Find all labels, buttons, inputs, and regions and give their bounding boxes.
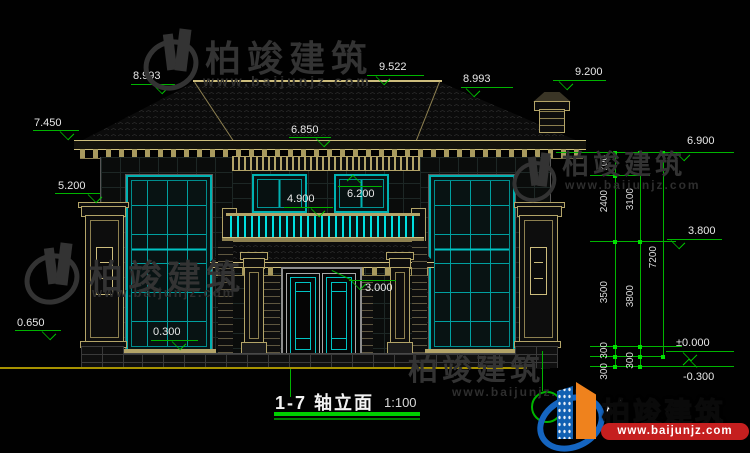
dim-7200: 7200 — [648, 246, 659, 268]
elevation-triangle — [60, 126, 75, 141]
elevation-label-door-top: 3.000 — [365, 282, 393, 294]
watermark-logo-icon — [24, 240, 84, 304]
dim-line — [33, 130, 79, 131]
chain-tick — [613, 365, 617, 369]
chain-tick — [638, 345, 642, 349]
dim-line — [338, 186, 382, 187]
logo-blue-tower-icon — [557, 386, 573, 439]
center-eave-slat-band — [232, 156, 420, 171]
left-pillar-base-stone — [81, 346, 124, 368]
chain-tick — [638, 355, 642, 359]
elevation-triangle — [671, 235, 686, 250]
watermark-url: www.baijunjz.com — [203, 73, 372, 89]
elevation-label-window2f-top: 6.200 — [347, 188, 375, 200]
elevation-label-pillar-top: 5.200 — [58, 180, 86, 192]
dim-line — [15, 330, 61, 331]
elevation-label-eave-right: 6.900 — [687, 135, 715, 147]
watermark-logo-icon — [512, 150, 560, 201]
elevation-label-balcony-rail: 4.900 — [287, 193, 315, 205]
watermark-url: www.baijunjz.com — [92, 285, 236, 300]
dim-line — [666, 351, 734, 352]
dim-300c: 300 — [599, 363, 610, 380]
chain-tick — [661, 355, 665, 359]
elevation-label-pillar-base: 0.650 — [17, 317, 45, 329]
logo-orange-tower-icon — [576, 382, 596, 439]
chain-tick — [638, 365, 642, 369]
elevation-label-floor2: 3.800 — [688, 225, 716, 237]
dim-line — [284, 207, 333, 208]
drawing-scale: 1:100 — [384, 395, 417, 410]
elevation-label-window-sill: 0.300 — [153, 326, 181, 338]
porch-column-left-shaft — [244, 267, 264, 344]
elevation-label-eave-center: 6.850 — [291, 124, 319, 136]
chain-tick — [613, 240, 617, 244]
right-pillar-lamp — [530, 247, 547, 295]
elevation-triangle — [559, 76, 574, 91]
watermark-brand: 柏竣建筑 — [408, 345, 544, 389]
dim-300b: 300 — [625, 352, 636, 369]
title-underline-thin — [274, 418, 420, 420]
door-leaf-left — [286, 273, 320, 359]
door-leaf-right — [322, 273, 356, 359]
dim-2400: 2400 — [599, 190, 610, 212]
drawing-title: 1-7 轴立面 — [275, 389, 374, 415]
balcony-balusters — [230, 216, 418, 237]
watermark-logo-icon — [143, 26, 203, 90]
logo-url-strip: www.baijunjz.com — [601, 423, 749, 440]
chain-tick — [638, 240, 642, 244]
chain-line-ground — [590, 366, 734, 367]
elevation-label-floor0: ±0.000 — [676, 337, 710, 349]
elevation-label-roof-left-tip: 7.450 — [34, 117, 62, 129]
elevation-label-ridge-center: 9.522 — [379, 61, 407, 73]
quoin-strip-right-outer — [412, 241, 427, 353]
elevation-label-chimney-top: 9.200 — [575, 66, 603, 78]
chimney-body — [539, 109, 565, 133]
elevation-label-ridge-right: 8.993 — [463, 73, 491, 85]
elevation-label-ground: -0.300 — [683, 371, 714, 383]
watermark-brand: 柏竣建筑 — [562, 143, 686, 182]
dim-3800: 3800 — [625, 285, 636, 307]
dim-3500: 3500 — [599, 281, 610, 303]
chain-tick — [613, 345, 617, 349]
porch-column-right-shaft — [390, 267, 410, 344]
cad-elevation-drawing: 7.450 5.200 0.650 8.993 9.522 8.993 9.20… — [0, 0, 750, 453]
chain-tick — [613, 355, 617, 359]
balcony-rail-bottom — [222, 237, 424, 242]
main-roof — [75, 82, 585, 144]
dim-300a: 300 — [599, 342, 610, 359]
watermark-url: www.baijunjz.com — [565, 178, 701, 192]
right-large-window — [429, 175, 515, 352]
